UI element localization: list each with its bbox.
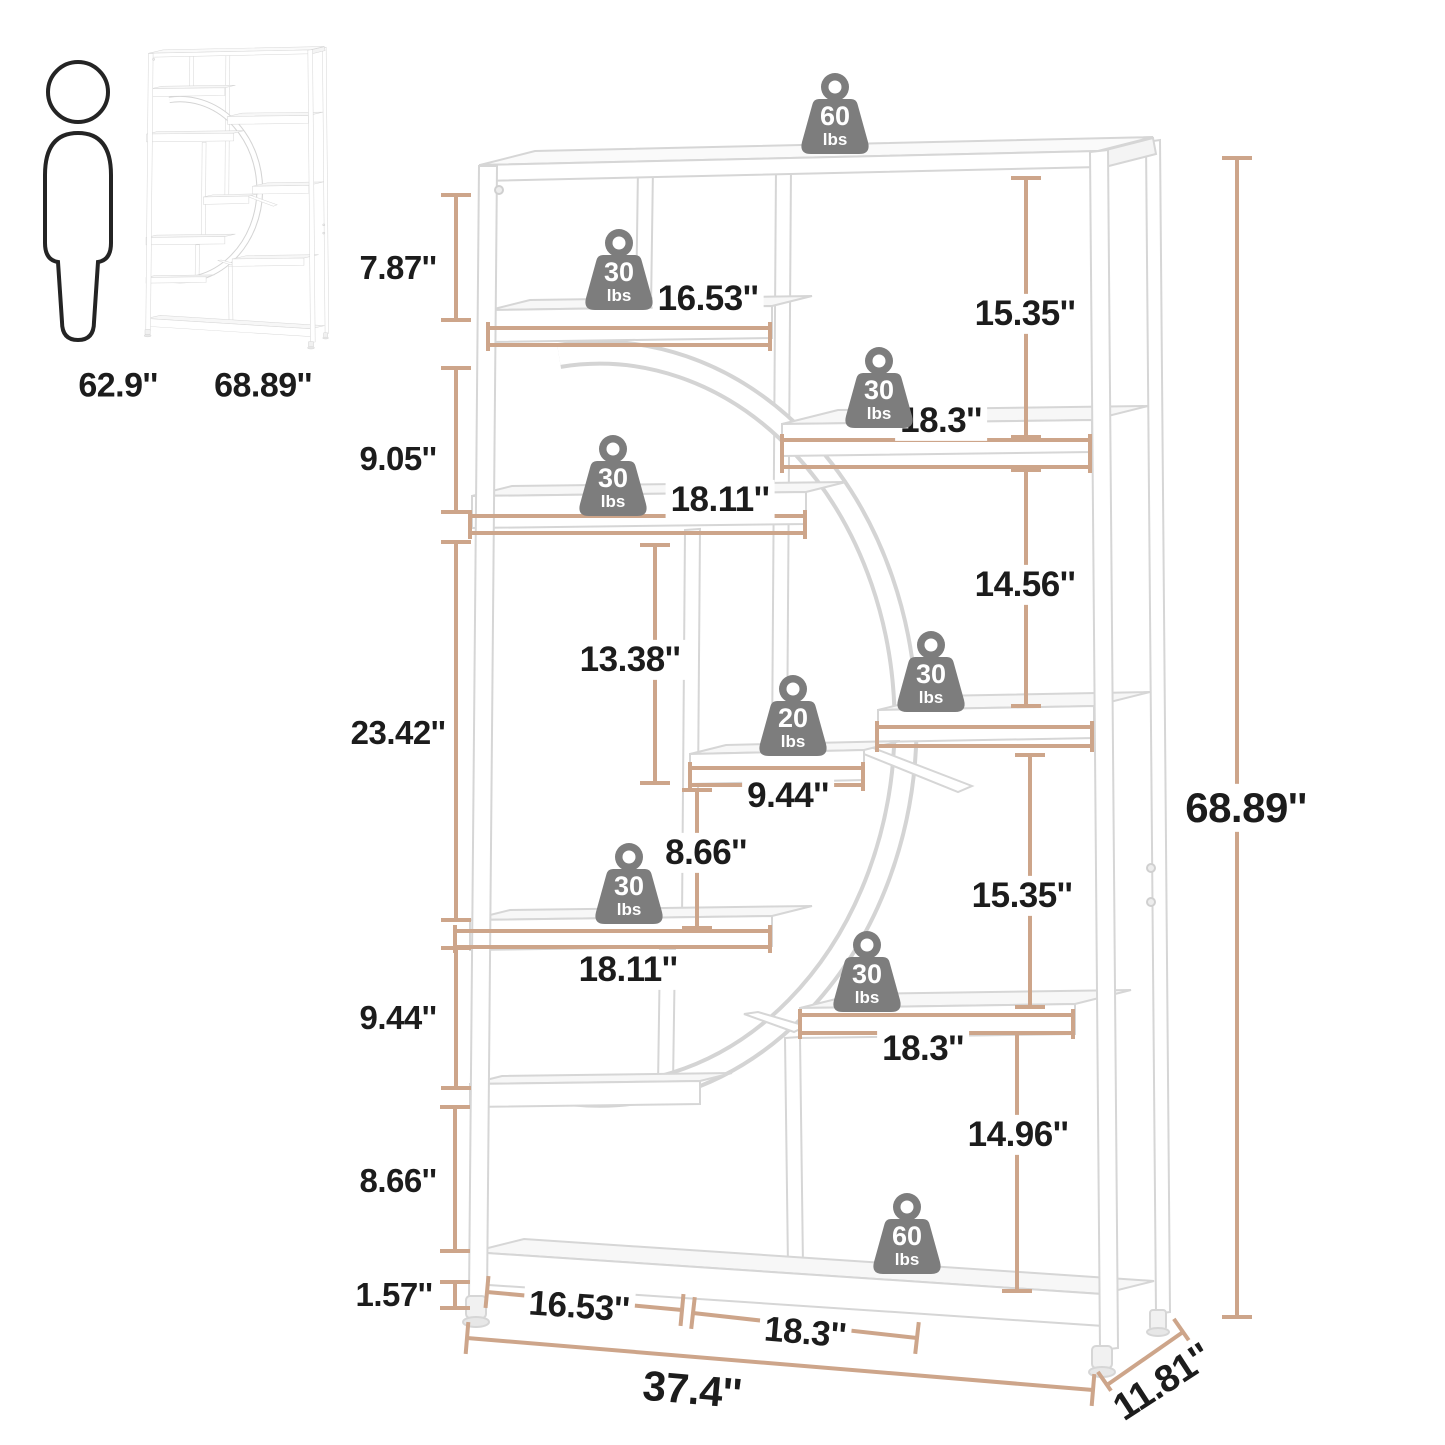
dimension-label-right_15_35_bottom: 15.35'' bbox=[967, 876, 1078, 916]
bookshelf-illustration bbox=[0, 0, 1445, 1445]
weight-capacity-badge-shelf_small: 20 lbs bbox=[756, 674, 830, 758]
dimension-label-total_height: 68.89'' bbox=[1180, 784, 1312, 832]
weight-unit: lbs bbox=[592, 901, 666, 918]
dimension-label-left_9_44: 9.44'' bbox=[355, 999, 442, 1037]
dimension-label-total_width: 37.4'' bbox=[636, 1361, 749, 1419]
weight-value: 30 bbox=[830, 961, 904, 988]
bookshelf-thumbnail bbox=[144, 46, 329, 349]
dimension-label-thumb_height: 68.89'' bbox=[209, 366, 317, 405]
dimension-label-shelf_9_44: 9.44'' bbox=[742, 776, 834, 816]
dimension-label-shelf_18_11_lower: 18.11'' bbox=[574, 950, 683, 990]
weight-value: 20 bbox=[756, 705, 830, 732]
dimension-label-right_14_56: 14.56'' bbox=[970, 565, 1081, 605]
dimension-label-mid_13_38: 13.38'' bbox=[575, 640, 686, 680]
weight-value: 30 bbox=[582, 259, 656, 286]
weight-unit: lbs bbox=[756, 733, 830, 750]
dimension-label-mid_8_66: 8.66'' bbox=[660, 833, 752, 873]
dimension-label-left_23_42: 23.42'' bbox=[346, 714, 451, 752]
dimension-line bbox=[466, 1322, 469, 1354]
weight-unit: lbs bbox=[894, 689, 968, 706]
dimension-label-bottom_18_3: 18.3'' bbox=[758, 1309, 853, 1357]
dimension-label-person_height: 62.9'' bbox=[73, 366, 162, 405]
dimension-label-left_9_05: 9.05'' bbox=[355, 440, 442, 478]
dimension-line bbox=[1092, 1374, 1095, 1406]
weight-unit: lbs bbox=[870, 1251, 944, 1268]
dimension-label-left_8_66: 8.66'' bbox=[355, 1162, 442, 1200]
dimension-label-shelf_18_3_lower: 18.3'' bbox=[877, 1029, 969, 1069]
weight-unit: lbs bbox=[842, 405, 916, 422]
dimension-line bbox=[681, 1294, 684, 1326]
person-icon bbox=[45, 62, 111, 340]
dimension-label-shelf_16_53: 16.53'' bbox=[653, 279, 764, 319]
weight-value: 30 bbox=[576, 465, 650, 492]
weight-capacity-badge-top_surface: 60 lbs bbox=[798, 72, 872, 156]
weight-capacity-badge-shelf_18_11_upper: 30 lbs bbox=[576, 434, 650, 518]
weight-value: 30 bbox=[842, 377, 916, 404]
dimension-line bbox=[915, 1322, 919, 1354]
weight-unit: lbs bbox=[798, 131, 872, 148]
weight-unit: lbs bbox=[830, 989, 904, 1006]
weight-capacity-badge-shelf_18_3_lower: 30 lbs bbox=[830, 930, 904, 1014]
dimension-label-left_1_57: 1.57'' bbox=[351, 1276, 438, 1314]
dimension-label-shelf_18_11_upper: 18.11'' bbox=[666, 480, 775, 520]
weight-unit: lbs bbox=[582, 287, 656, 304]
dimension-label-right_14_96: 14.96'' bbox=[963, 1115, 1074, 1155]
dimension-label-right_15_35_top: 15.35'' bbox=[970, 294, 1081, 334]
dimension-diagram: 62.9''68.89''7.87''9.05''23.42''9.44''8.… bbox=[0, 0, 1445, 1445]
weight-value: 60 bbox=[798, 103, 872, 130]
weight-value: 30 bbox=[894, 661, 968, 688]
weight-value: 30 bbox=[592, 873, 666, 900]
dimension-label-bottom_16_53: 16.53'' bbox=[522, 1283, 635, 1331]
weight-capacity-badge-shelf_16_53: 30 lbs bbox=[582, 228, 656, 312]
weight-capacity-badge-shelf_18_3_upper: 30 lbs bbox=[842, 346, 916, 430]
weight-capacity-badge-shelf_mid_right: 30 lbs bbox=[894, 630, 968, 714]
weight-unit: lbs bbox=[576, 493, 650, 510]
weight-value: 60 bbox=[870, 1223, 944, 1250]
weight-capacity-badge-shelf_18_11_lower: 30 lbs bbox=[592, 842, 666, 926]
weight-capacity-badge-bottom_shelf: 60 lbs bbox=[870, 1192, 944, 1276]
dimension-label-left_7_87: 7.87'' bbox=[355, 249, 442, 287]
dimension-line bbox=[691, 1297, 695, 1329]
